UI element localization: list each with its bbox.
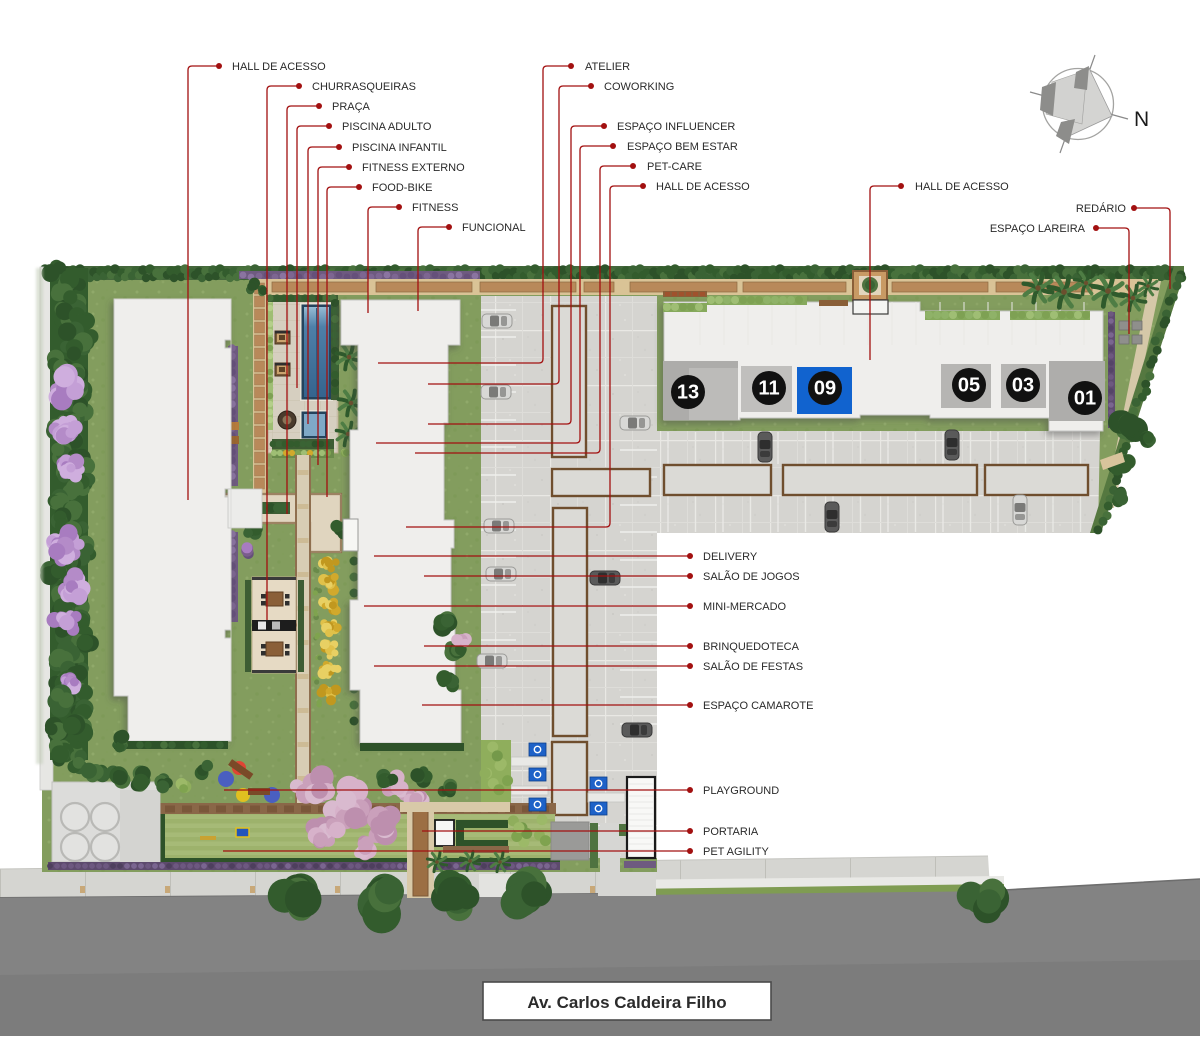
svg-text:SALÃO DE FESTAS: SALÃO DE FESTAS: [703, 660, 803, 673]
svg-text:HALL DE ACESSO: HALL DE ACESSO: [656, 181, 750, 193]
svg-text:REDÁRIO: REDÁRIO: [1076, 202, 1127, 215]
svg-text:ESPAÇO CAMAROTE: ESPAÇO CAMAROTE: [703, 700, 813, 712]
svg-text:FOOD-BIKE: FOOD-BIKE: [372, 182, 433, 194]
svg-text:05: 05: [958, 375, 980, 397]
svg-text:FITNESS EXTERNO: FITNESS EXTERNO: [362, 162, 465, 174]
svg-text:ESPAÇO INFLUENCER: ESPAÇO INFLUENCER: [617, 121, 735, 133]
svg-text:01: 01: [1074, 388, 1096, 410]
svg-text:FUNCIONAL: FUNCIONAL: [462, 222, 526, 234]
svg-text:ESPAÇO BEM ESTAR: ESPAÇO BEM ESTAR: [627, 141, 738, 153]
svg-text:PISCINA ADULTO: PISCINA ADULTO: [342, 121, 432, 133]
svg-text:SALÃO DE JOGOS: SALÃO DE JOGOS: [703, 570, 800, 583]
svg-text:COWORKING: COWORKING: [604, 81, 674, 93]
svg-text:BRINQUEDOTECA: BRINQUEDOTECA: [703, 641, 800, 653]
svg-text:03: 03: [1012, 375, 1034, 397]
svg-text:ESPAÇO LAREIRA: ESPAÇO LAREIRA: [990, 223, 1086, 235]
svg-text:PLAYGROUND: PLAYGROUND: [703, 785, 779, 797]
svg-text:PISCINA INFANTIL: PISCINA INFANTIL: [352, 142, 447, 154]
svg-text:PET-CARE: PET-CARE: [647, 161, 702, 173]
svg-text:11: 11: [758, 378, 779, 400]
svg-text:CHURRASQUEIRAS: CHURRASQUEIRAS: [312, 81, 416, 93]
svg-text:PRAÇA: PRAÇA: [332, 101, 371, 113]
svg-text:N: N: [1134, 108, 1149, 131]
svg-text:09: 09: [814, 378, 836, 400]
svg-text:PORTARIA: PORTARIA: [703, 826, 759, 838]
svg-text:13: 13: [677, 382, 699, 404]
svg-text:PET AGILITY: PET AGILITY: [703, 846, 769, 858]
svg-text:HALL DE ACESSO: HALL DE ACESSO: [915, 181, 1009, 193]
svg-text:ATELIER: ATELIER: [585, 61, 630, 73]
svg-text:DELIVERY: DELIVERY: [703, 551, 758, 563]
svg-text:FITNESS: FITNESS: [412, 202, 458, 214]
svg-text:Av. Carlos Caldeira Filho: Av. Carlos Caldeira Filho: [527, 993, 726, 1012]
svg-text:MINI-MERCADO: MINI-MERCADO: [703, 601, 787, 613]
svg-text:HALL DE ACESSO: HALL DE ACESSO: [232, 61, 326, 73]
